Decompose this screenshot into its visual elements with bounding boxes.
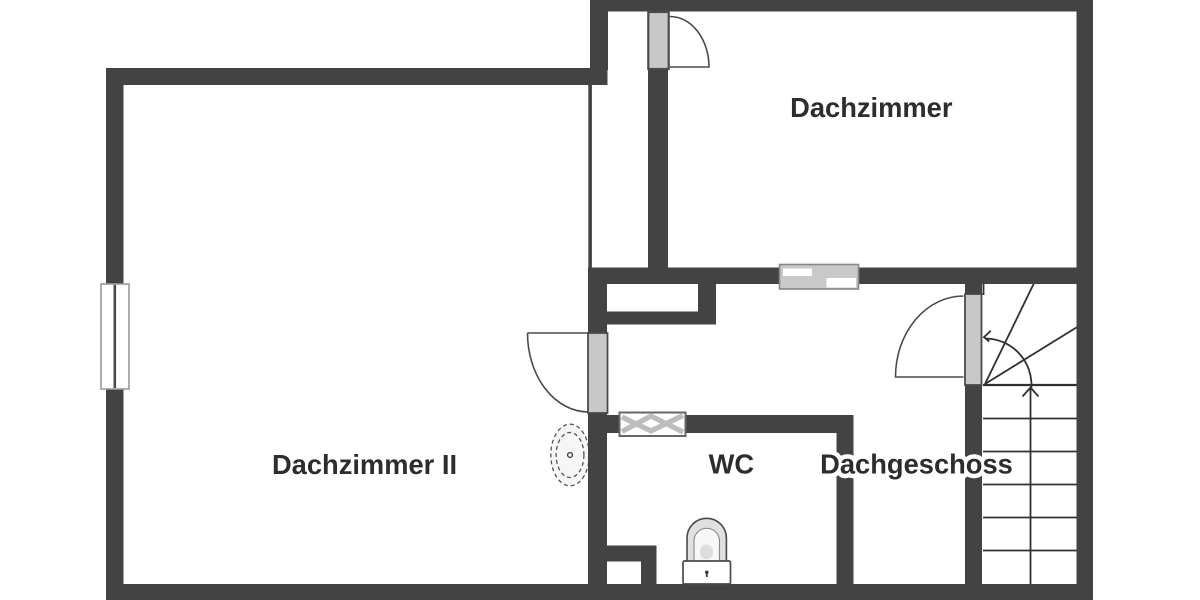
svg-text:WC: WC — [709, 448, 754, 479]
svg-text:Dachzimmer: Dachzimmer — [790, 92, 953, 123]
svg-text:Dachgeschoss: Dachgeschoss — [820, 449, 1013, 480]
svg-text:Dachzimmer II: Dachzimmer II — [272, 449, 457, 480]
